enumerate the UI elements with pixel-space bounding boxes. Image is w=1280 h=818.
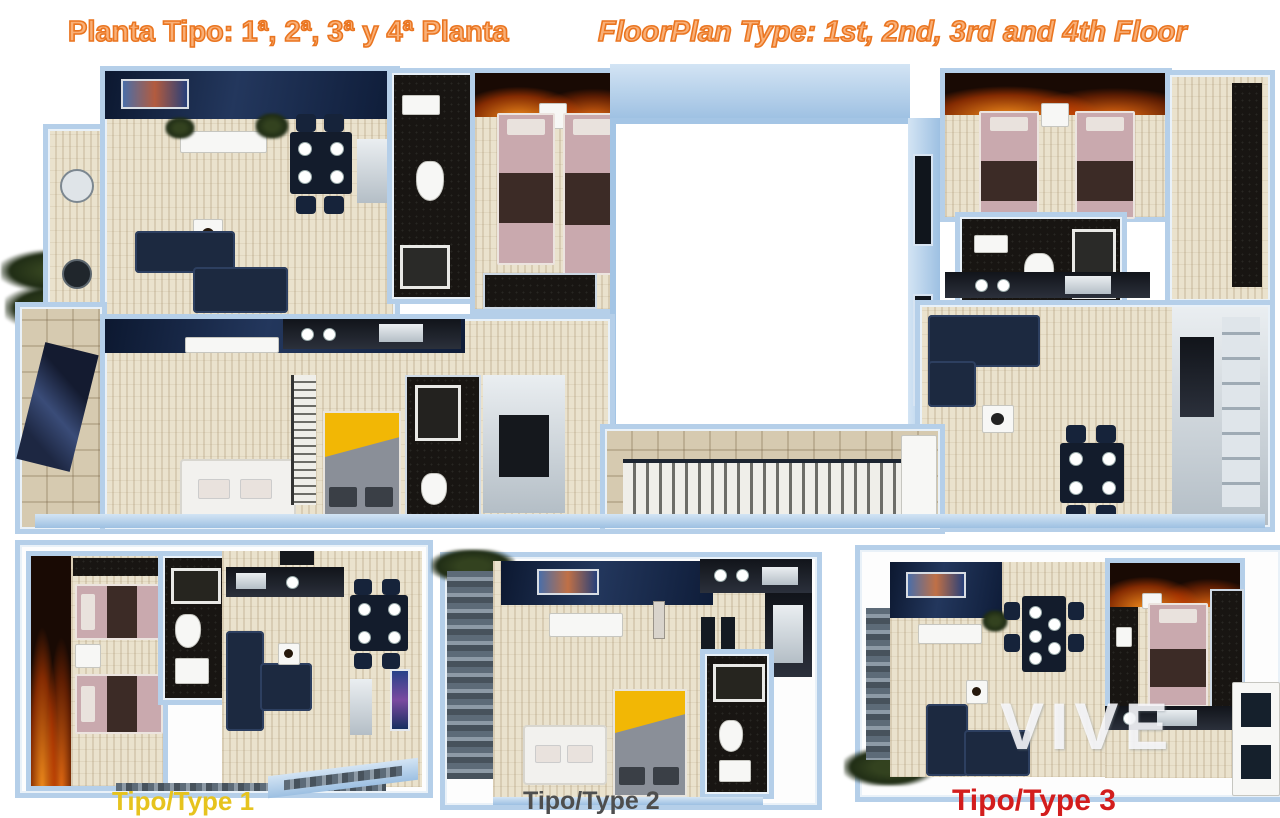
fan: [62, 259, 92, 289]
dark-panel: [1241, 745, 1271, 779]
plate: [1048, 618, 1061, 631]
unit-label-type-3: Tipo/Type 3: [952, 784, 1116, 818]
bed: [979, 111, 1039, 219]
wall-art: [906, 572, 966, 598]
wardrobe-room: [1165, 70, 1275, 306]
bathroom-sink: [175, 658, 209, 684]
cooktop: [379, 324, 423, 342]
plate: [330, 142, 344, 156]
dining-chair: [1004, 602, 1020, 620]
bathroom: [158, 551, 232, 705]
pillow: [653, 767, 679, 785]
balcony-glazing: [447, 571, 493, 779]
fire-bowl: [972, 687, 981, 696]
sectional-sofa: [226, 631, 264, 731]
tall-cabinet: [357, 139, 387, 203]
plate: [388, 603, 401, 616]
living-dining-room-left: [100, 66, 400, 321]
kitchen-counter: [945, 272, 1150, 298]
sink-basin: [286, 576, 299, 589]
floorplan-page: { "header": { "title_left": "Planta Tipo…: [0, 0, 1280, 800]
fire-accent-wall: [31, 556, 71, 786]
cushion: [535, 745, 561, 763]
pillow: [507, 119, 545, 135]
sofa: [193, 267, 288, 313]
bathroom-left: [387, 68, 477, 304]
dining-chair: [1068, 602, 1084, 620]
dining-set: [1018, 592, 1070, 676]
bio-fireplace: [278, 643, 300, 665]
annex-room: [1232, 682, 1280, 796]
dining-table: [350, 595, 408, 651]
page-title-english: FloorPlan Type: 1st, 2nd, 3rd and 4th Fl…: [598, 16, 1187, 49]
dining-chair: [324, 114, 344, 132]
bed-yellow: [323, 411, 401, 519]
cooktop: [1065, 276, 1111, 294]
dining-set: [290, 126, 352, 204]
communal-stairs: [623, 459, 905, 519]
bed: [75, 584, 163, 640]
bedroom-right: [940, 68, 1172, 222]
bathroom-sink: [402, 95, 440, 115]
navy-accent-wall: [105, 71, 395, 119]
dining-table: [1022, 596, 1066, 672]
plate: [298, 142, 312, 156]
blanket: [107, 676, 137, 732]
wardrobe: [1232, 83, 1262, 287]
bathtub: [713, 664, 765, 702]
toilet: [416, 161, 444, 201]
bed: [497, 113, 555, 265]
plant: [255, 113, 289, 139]
tv-console: [185, 337, 279, 353]
plate: [358, 631, 371, 644]
toilet: [421, 473, 447, 505]
pillow: [81, 594, 95, 630]
bathroom-lower: [405, 375, 481, 517]
pillow: [1086, 117, 1124, 131]
dark-panel: [1241, 693, 1271, 727]
kitchen-counter: [283, 319, 461, 349]
pillow: [365, 487, 393, 507]
closet: [73, 558, 161, 576]
cushion: [240, 479, 272, 499]
dining-chair: [296, 196, 316, 214]
wall-art: [537, 569, 599, 595]
balcony-glazing: [866, 608, 890, 760]
plate: [1069, 481, 1083, 495]
nightstand: [1041, 103, 1069, 127]
main-floorplan: [15, 62, 1265, 532]
pillow: [619, 767, 645, 785]
unit-label-type-1: Tipo/Type 1: [112, 786, 254, 817]
outer-wall: [35, 514, 1265, 528]
plate: [388, 631, 401, 644]
dining-chair: [354, 579, 372, 595]
cushion: [198, 479, 230, 499]
plate: [358, 603, 371, 616]
fridge: [773, 605, 803, 663]
white-sofa: [180, 459, 296, 519]
plate: [1102, 481, 1116, 495]
bed: [75, 674, 163, 734]
pillow: [1159, 609, 1197, 623]
decor-panel: [16, 342, 98, 472]
bathroom: [700, 649, 774, 799]
terrace-table: [60, 169, 94, 203]
sink-basin: [714, 569, 727, 582]
terrace-bottom-left: [15, 302, 107, 534]
toilet: [719, 720, 743, 752]
living-kitchen: [222, 551, 422, 787]
navy-accent-wall: [501, 561, 713, 605]
fire-bowl: [284, 649, 293, 658]
shower: [171, 568, 221, 604]
dining-chair: [382, 653, 400, 669]
sink-basin: [323, 328, 336, 341]
cabinet-drawers: [1222, 317, 1260, 507]
elevator: [901, 435, 937, 521]
cushion: [567, 745, 593, 763]
dining-chair: [1096, 425, 1116, 443]
blanket: [1150, 649, 1206, 687]
dining-table: [290, 132, 352, 194]
plant: [165, 117, 195, 139]
blanket: [1077, 161, 1133, 201]
kitchen-counter: [700, 559, 812, 593]
bio-fireplace: [966, 680, 988, 704]
sectional-sofa: [928, 315, 1040, 367]
shower: [415, 385, 461, 441]
sideboard: [549, 613, 623, 637]
page-title-spanish: Planta Tipo: 1ª, 2ª, 3ª y 4ª Planta: [68, 16, 508, 49]
white-sofa: [523, 725, 607, 785]
plate: [1029, 606, 1042, 619]
living-room-right: [915, 300, 1275, 532]
plate: [1048, 642, 1061, 655]
mannequin: [653, 601, 665, 639]
sectional-sofa: [928, 361, 976, 407]
blanket: [107, 586, 137, 638]
blanket: [981, 161, 1037, 201]
shower: [400, 245, 450, 289]
dining-table: [1060, 443, 1124, 503]
tv-console: [350, 679, 372, 735]
dining-chair: [354, 653, 372, 669]
dining-chair: [1066, 425, 1086, 443]
watermark: VIVE: [1000, 688, 1174, 764]
sink-basin: [736, 569, 749, 582]
courtyard-void: [610, 118, 920, 438]
sideboard: [918, 624, 982, 644]
courtyard-top-wall: [610, 64, 910, 120]
extractor-hood: [280, 551, 314, 565]
dining-chair: [1068, 634, 1084, 652]
plate: [1069, 452, 1083, 466]
sink-basin: [975, 279, 988, 292]
unit-plan-1: [15, 540, 433, 798]
unit-plan-2: [440, 552, 822, 810]
unit-plan-3: VIVE: [855, 545, 1280, 802]
sink-basin: [997, 279, 1010, 292]
dining-set: [350, 589, 408, 661]
pillow: [573, 119, 611, 135]
dining-set: [1060, 437, 1124, 513]
sectional-sofa: [926, 704, 968, 776]
kitchen-counter: [226, 567, 344, 597]
plate: [1102, 452, 1116, 466]
unit-label-type-2: Tipo/Type 2: [523, 787, 660, 816]
plate: [330, 170, 344, 184]
cooktop: [762, 567, 798, 585]
dining-chair: [296, 114, 316, 132]
interior-stairs: [291, 375, 316, 505]
media-unit: [982, 405, 1014, 433]
window: [913, 154, 933, 246]
plate: [1029, 630, 1042, 643]
dining-chair: [382, 579, 400, 595]
wall-art: [390, 669, 410, 731]
kitchen-units: [1172, 307, 1268, 525]
nightstand: [75, 644, 101, 668]
bathroom-sink: [1116, 627, 1132, 647]
yellow-duvet: [615, 691, 685, 733]
pillow: [329, 487, 357, 507]
bed-yellow: [613, 689, 687, 797]
toilet: [175, 614, 201, 648]
dining-chair: [324, 196, 344, 214]
bedroom: [26, 551, 168, 791]
plate: [1029, 652, 1042, 665]
bathroom-sink: [719, 760, 751, 782]
closet: [483, 273, 597, 309]
fridge: [1180, 337, 1214, 417]
living-room-lower-left: [100, 314, 615, 534]
plate: [298, 170, 312, 184]
tv-panel: [499, 415, 549, 477]
blanket: [499, 173, 553, 223]
bed: [1075, 111, 1135, 219]
cooktop: [236, 573, 266, 589]
sink-basin: [301, 328, 314, 341]
dining-chair: [1004, 634, 1020, 652]
pillow: [81, 686, 95, 722]
wall-art: [121, 79, 189, 109]
dressing-closet: [483, 375, 565, 513]
pillow: [990, 117, 1028, 131]
sectional-sofa: [260, 663, 312, 711]
fireplace-insert: [991, 413, 1004, 425]
yellow-duvet: [325, 413, 399, 457]
bathroom-sink: [974, 235, 1008, 253]
